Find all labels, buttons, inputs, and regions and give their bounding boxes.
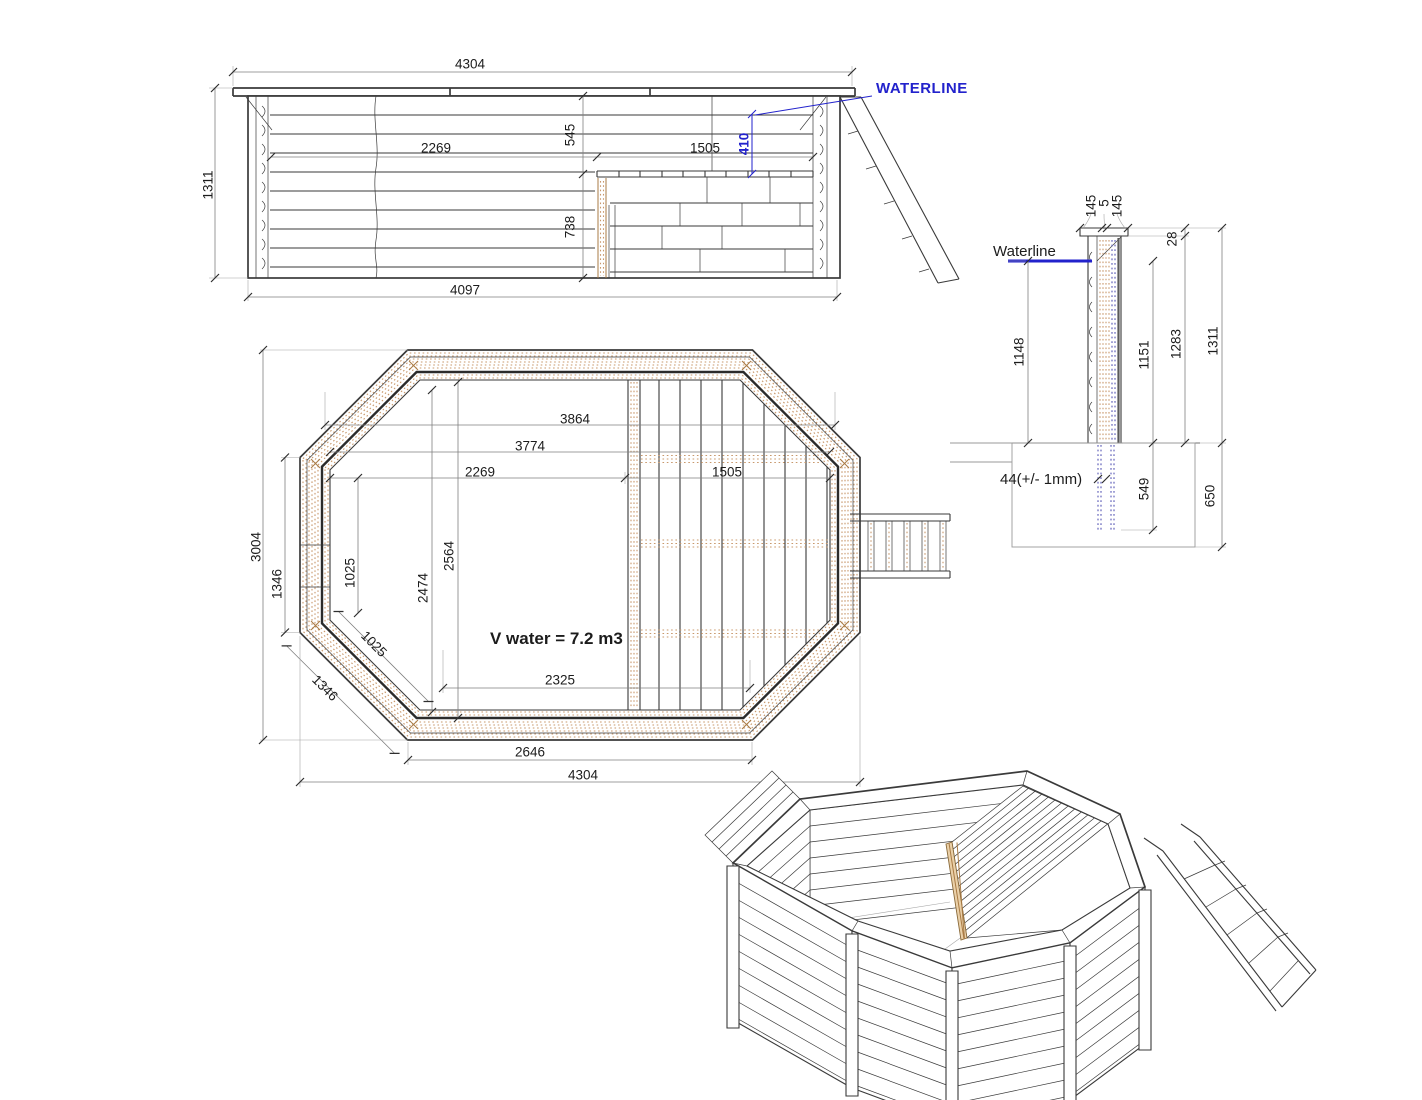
elev-dim-deck-to-base: 738 — [563, 216, 578, 239]
pool-drawing-canvas: 4304 1311 4097 2269 1505 545 738 410 WAT… — [0, 0, 1422, 1100]
plan-dim-4304: 4304 — [568, 768, 599, 783]
iso-post-f — [1064, 946, 1076, 1100]
elev-dim-rim-to-deck: 545 — [563, 124, 578, 147]
elevation-cap — [233, 88, 855, 96]
plan-dim-2325: 2325 — [545, 673, 575, 688]
iso-post-g — [946, 971, 958, 1100]
section-embedded-posts — [1098, 445, 1114, 530]
elev-dim-waterline-height: 410 — [737, 133, 752, 156]
section-foundation-box — [1012, 443, 1195, 547]
plan-inner-wall — [330, 380, 830, 710]
elevation-view: 4304 1311 4097 2269 1505 545 738 410 WAT… — [201, 57, 968, 302]
plan-deck-edge-hatch — [631, 382, 637, 708]
elevation-body — [248, 96, 840, 278]
elev-dim-overall-height: 1311 — [201, 170, 216, 199]
sec-dim-foundation-depth: 650 — [1203, 485, 1218, 508]
iso-post-a — [727, 866, 739, 1028]
section-slab-lines — [950, 443, 1012, 462]
section-cap — [1080, 228, 1128, 236]
section-detail-view: 145 5 145 28 Waterline 1148 1151 1283 13… — [950, 195, 1226, 551]
section-dim-lines — [1028, 228, 1222, 547]
sec-dim-cap-inner: 145 — [1110, 195, 1125, 218]
elev-waterline-label: WATERLINE — [876, 80, 968, 97]
plan-view: 3864 3774 2269 1505 3004 1346 1025 1025 … — [249, 346, 951, 787]
plan-ladder-rails — [850, 514, 950, 578]
plan-dim-3774: 3774 — [515, 439, 546, 454]
sec-dim-water-depth: 1148 — [1012, 337, 1027, 366]
plan-dim-3004: 3004 — [249, 531, 264, 562]
elev-dim-base-width: 4097 — [450, 283, 480, 298]
sec-dim-cap-thickness: 28 — [1165, 231, 1180, 246]
section-wall-outline — [1088, 236, 1121, 443]
isometric-view — [705, 684, 1316, 1100]
iso-post-e — [1139, 890, 1151, 1050]
iso-ladder-steps — [1184, 861, 1298, 991]
plan-dim-1346-diag: 1346 — [309, 672, 341, 704]
section-ext-lines — [1008, 228, 1226, 547]
plan-dim-2564: 2564 — [442, 540, 457, 571]
plan-dim-1025-left: 1025 — [343, 558, 358, 588]
iso-wall-front-right — [952, 943, 1070, 1100]
section-ticks — [1024, 224, 1226, 551]
iso-post-h — [846, 934, 858, 1096]
section-log-bumps — [1090, 252, 1093, 434]
section-wall-hatch — [1100, 240, 1109, 441]
plan-dim-1505: 1505 — [712, 465, 742, 480]
technical-drawing-page: 4304 1311 4097 2269 1505 545 738 410 WAT… — [0, 0, 1422, 1100]
sec-dim-under-cap: 1283 — [1169, 329, 1184, 359]
sec-dim-total-height: 1311 — [1206, 326, 1221, 355]
sec-dim-embed-depth: 549 — [1137, 478, 1152, 501]
plan-hatch-ring-8 — [328, 378, 832, 712]
elev-dim-overall-width: 4304 — [455, 57, 486, 72]
plan-volume-label: V water = 7.2 m3 — [490, 629, 623, 648]
plan-dim-2646: 2646 — [515, 745, 545, 760]
plan-dim-1025-diag: 1025 — [358, 628, 390, 660]
elev-dim-water-width: 2269 — [421, 141, 451, 156]
section-wall-dots — [1112, 240, 1115, 441]
sec-tolerance-note: 44(+/- 1mm) — [1000, 471, 1082, 488]
elev-dim-deck-width: 1505 — [690, 141, 720, 156]
plan-deck-joists — [641, 456, 830, 638]
plan-dim-3864: 3864 — [560, 412, 591, 427]
plan-dim-1346-left: 1346 — [270, 569, 285, 599]
plan-ladder-hatch — [871, 523, 943, 569]
plan-dim-2474: 2474 — [416, 572, 431, 603]
iso-ladder-rails — [1144, 824, 1316, 1011]
elevation-ladder — [840, 97, 959, 283]
plan-dim-2269: 2269 — [465, 465, 495, 480]
sec-dim-wall-height: 1151 — [1137, 340, 1152, 369]
sec-waterline-label: Waterline — [993, 243, 1056, 260]
